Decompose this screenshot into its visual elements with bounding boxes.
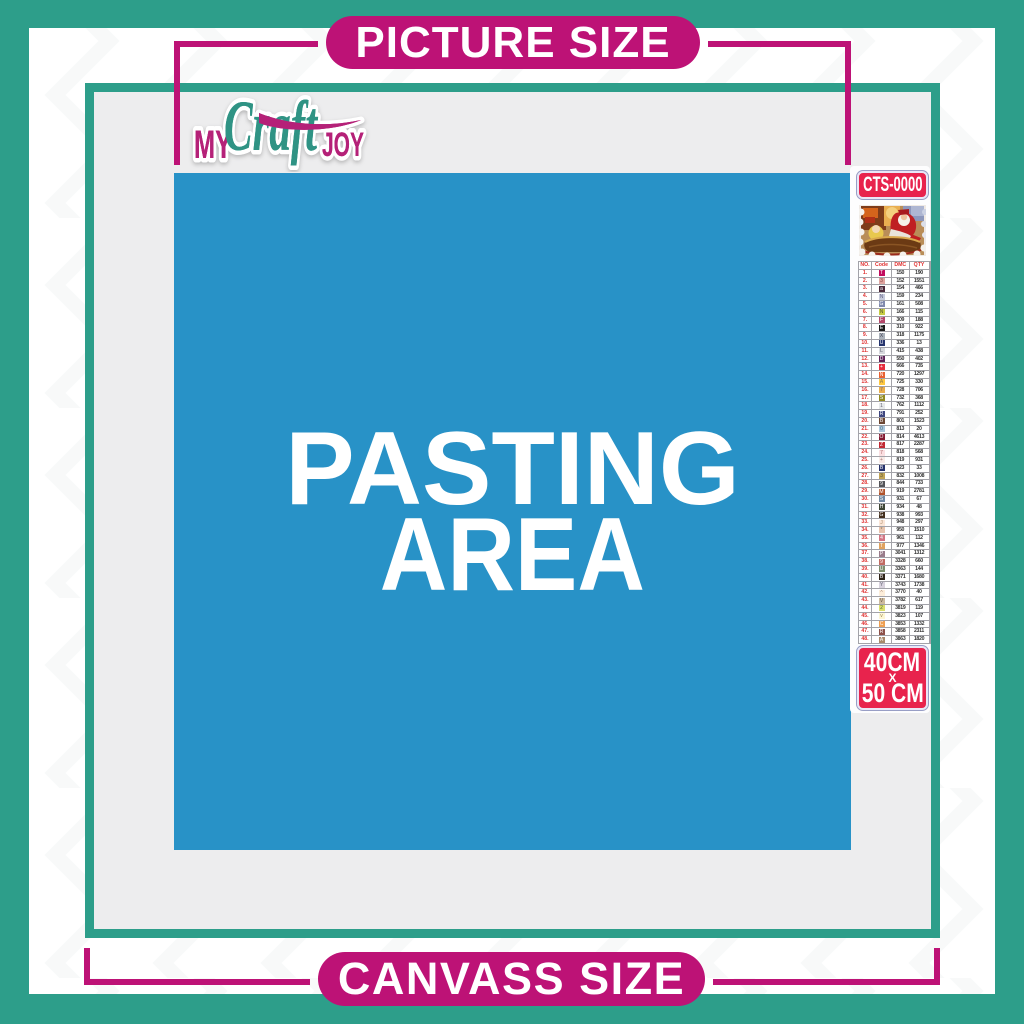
svg-text:JOY: JOY [322,126,364,164]
